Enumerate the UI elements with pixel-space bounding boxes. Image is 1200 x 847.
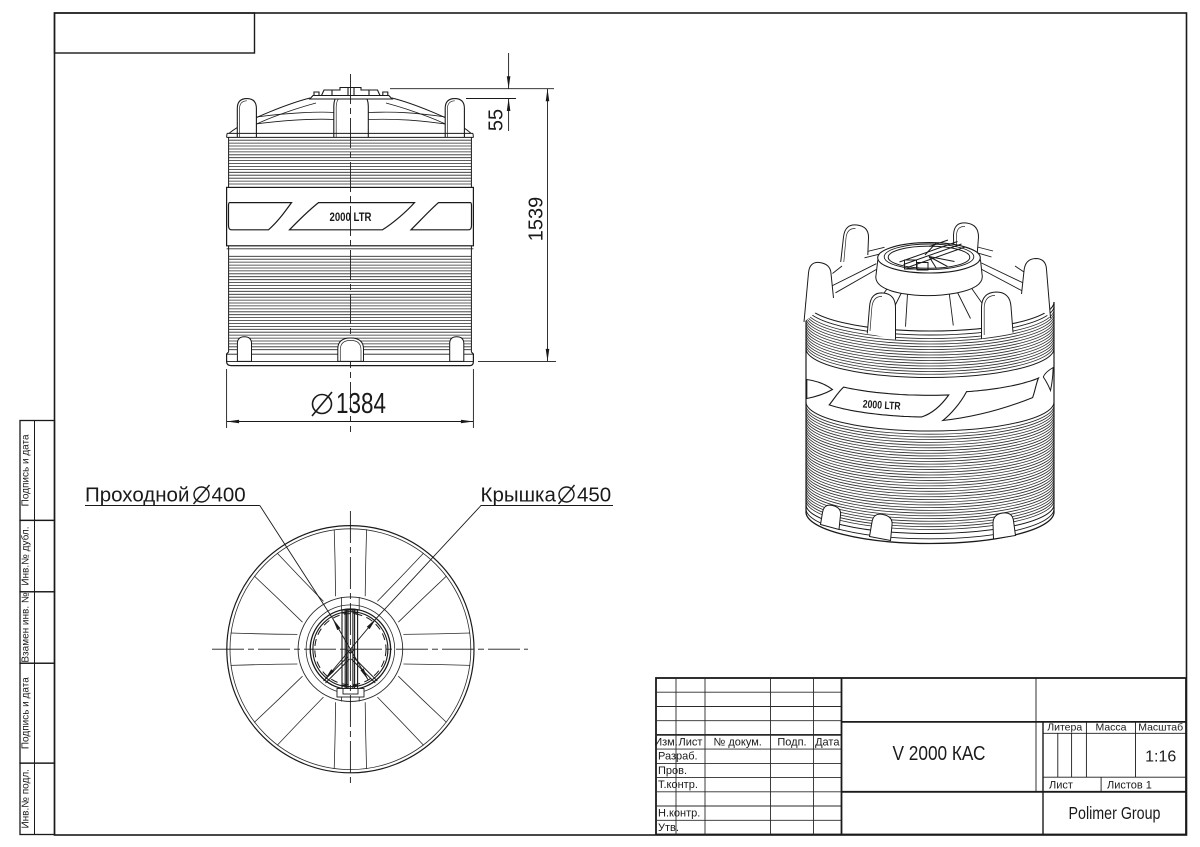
svg-text:1539: 1539 bbox=[526, 197, 548, 242]
svg-text:Дата: Дата bbox=[815, 736, 840, 748]
svg-text:2000 LTR: 2000 LTR bbox=[862, 399, 901, 413]
svg-text:Инв.№ дубл.: Инв.№ дубл. bbox=[20, 527, 32, 586]
svg-text:Лист: Лист bbox=[1049, 779, 1073, 791]
svg-text:Литера: Литера bbox=[1047, 721, 1082, 733]
svg-text:Проходной: Проходной bbox=[85, 484, 189, 507]
svg-text:Изм.: Изм. bbox=[654, 736, 678, 748]
svg-text:Крышка: Крышка bbox=[481, 484, 557, 507]
svg-text:Polimer Group: Polimer Group bbox=[1069, 803, 1161, 823]
svg-text:2000 LTR: 2000 LTR bbox=[330, 212, 373, 224]
svg-text:Подпись и дата: Подпись и дата bbox=[21, 434, 32, 506]
svg-text:1:16: 1:16 bbox=[1145, 749, 1176, 766]
svg-text:Инв.№ подл.: Инв.№ подл. bbox=[21, 769, 32, 829]
svg-text:Подпись и дата: Подпись и дата bbox=[21, 677, 32, 749]
svg-text:Н.контр.: Н.контр. bbox=[658, 808, 700, 820]
svg-text:Разраб.: Разраб. bbox=[658, 751, 698, 763]
svg-text:Пров.: Пров. bbox=[658, 765, 687, 777]
svg-text:№ докум.: № докум. bbox=[714, 736, 762, 748]
svg-text:V 2000 КАС: V 2000 КАС bbox=[893, 743, 986, 765]
svg-text:Подп.: Подп. bbox=[777, 736, 806, 748]
svg-text:55: 55 bbox=[486, 109, 508, 131]
svg-text:Взамен инв. №: Взамен инв. № bbox=[21, 592, 32, 663]
svg-text:450: 450 bbox=[577, 484, 611, 507]
svg-text:Лист: Лист bbox=[679, 736, 703, 748]
svg-text:1384: 1384 bbox=[336, 388, 386, 420]
svg-text:Листов 1: Листов 1 bbox=[1107, 779, 1152, 791]
svg-text:400: 400 bbox=[212, 484, 246, 507]
svg-text:Т.контр.: Т.контр. bbox=[658, 779, 698, 791]
svg-text:Масса: Масса bbox=[1095, 721, 1126, 733]
svg-text:Утв.: Утв. bbox=[658, 822, 679, 834]
svg-text:Масштаб: Масштаб bbox=[1138, 721, 1183, 733]
